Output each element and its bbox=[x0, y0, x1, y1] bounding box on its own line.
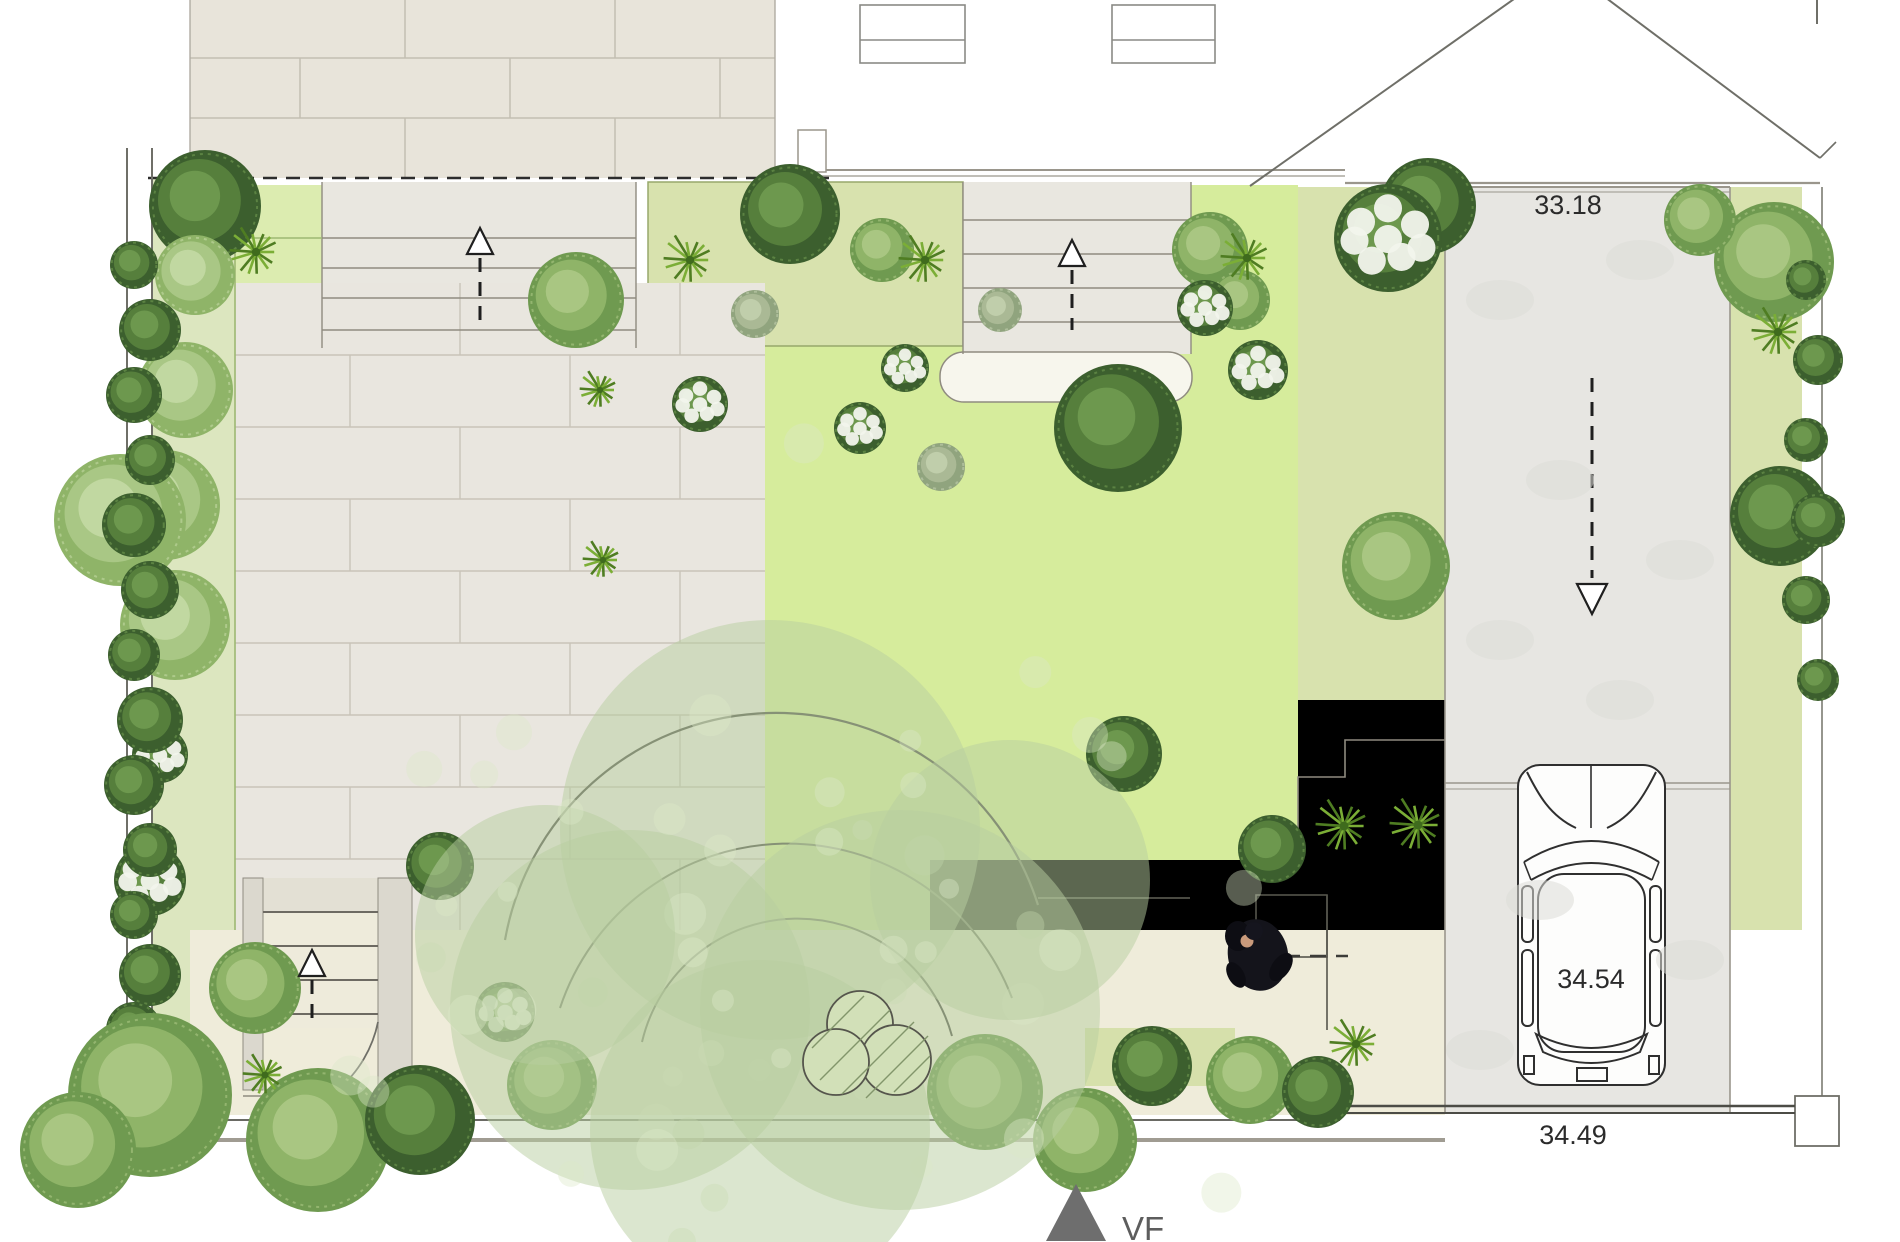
driveway-texture bbox=[1586, 680, 1654, 720]
canopy-speckle bbox=[470, 761, 498, 789]
white-bloom bbox=[170, 753, 185, 768]
tree bbox=[1793, 335, 1843, 385]
tree-foliage bbox=[119, 900, 141, 922]
grass-blade bbox=[1390, 823, 1416, 825]
grass-crown bbox=[1243, 254, 1251, 262]
grass-blade bbox=[1752, 330, 1776, 332]
driveway-texture bbox=[1506, 880, 1574, 920]
grass-crown bbox=[261, 1071, 268, 1078]
canopy-speckle bbox=[771, 1048, 791, 1068]
white-bloom bbox=[869, 426, 883, 440]
driveway-texture bbox=[1656, 940, 1724, 980]
canopy-speckle bbox=[406, 751, 442, 787]
gate-pier-right bbox=[378, 878, 412, 1090]
tree bbox=[119, 299, 181, 361]
canopy-speckle bbox=[1097, 741, 1127, 771]
tree-foliage bbox=[170, 250, 206, 286]
tree-foliage bbox=[1362, 532, 1411, 581]
flower-shrub bbox=[1334, 184, 1442, 292]
grass-blade bbox=[899, 258, 923, 260]
trunk-lobe bbox=[803, 1029, 869, 1095]
tree-foliage bbox=[119, 250, 141, 272]
tree bbox=[1786, 260, 1826, 300]
tree bbox=[121, 561, 179, 619]
grass-crown bbox=[686, 256, 694, 264]
garden-plan-canvas: 33.18 34.54 34.49 VF bbox=[0, 0, 1900, 1242]
tree bbox=[1342, 512, 1450, 620]
canopy-speckle bbox=[815, 828, 843, 856]
white-bloom bbox=[1180, 302, 1195, 317]
flower-shrub bbox=[672, 376, 728, 432]
grass-blade bbox=[925, 263, 926, 282]
tree bbox=[104, 755, 164, 815]
canopy-speckle bbox=[448, 995, 488, 1035]
flower-shrub bbox=[834, 402, 886, 454]
white-bloom bbox=[837, 423, 851, 437]
white-bloom bbox=[914, 366, 926, 378]
grass-crown bbox=[1774, 328, 1782, 336]
tree-foliage bbox=[1791, 585, 1813, 607]
canopy-speckle bbox=[1201, 1173, 1241, 1213]
tree bbox=[108, 629, 160, 681]
level-label-car: 34.54 bbox=[1557, 964, 1625, 994]
gate-post bbox=[1795, 1096, 1839, 1146]
driveway-texture bbox=[1606, 240, 1674, 280]
grass-blade bbox=[583, 559, 601, 560]
tree-foliage bbox=[1677, 197, 1709, 229]
tree-foliage bbox=[1801, 503, 1825, 527]
grass-blade bbox=[1221, 256, 1245, 258]
white-bloom bbox=[1250, 363, 1266, 379]
flower-shrub bbox=[1177, 280, 1233, 336]
tree-foliage bbox=[546, 270, 589, 313]
white-bloom bbox=[1215, 306, 1230, 321]
grass-blade bbox=[664, 258, 688, 260]
garden-plan-svg: 33.18 34.54 34.49 VF bbox=[0, 0, 1900, 1242]
flower-shrub bbox=[881, 344, 929, 392]
parked-car bbox=[1518, 765, 1665, 1085]
tree bbox=[978, 288, 1022, 332]
white-bloom bbox=[1250, 346, 1266, 362]
grass-blade bbox=[1418, 828, 1419, 849]
white-bloom bbox=[1407, 234, 1435, 262]
white-bloom bbox=[710, 402, 725, 417]
grass-crown bbox=[252, 248, 260, 256]
tree bbox=[1664, 184, 1736, 256]
canopy-speckle bbox=[915, 941, 937, 963]
tree-foliage bbox=[118, 639, 141, 662]
grass-crown bbox=[1340, 822, 1349, 831]
white-bloom bbox=[899, 362, 911, 374]
grass-blade bbox=[243, 1073, 263, 1074]
tree bbox=[123, 823, 177, 877]
grass-blade bbox=[1356, 1047, 1357, 1066]
canopy-speckle bbox=[900, 772, 926, 798]
viewpoint-label: VF bbox=[1122, 1210, 1164, 1242]
white-bloom bbox=[693, 381, 708, 396]
driveway-texture bbox=[1466, 280, 1534, 320]
tree-foliage bbox=[385, 1085, 435, 1135]
tree-foliage bbox=[759, 183, 804, 228]
grass-crown bbox=[921, 256, 929, 264]
driveway-texture bbox=[1646, 540, 1714, 580]
level-label-lower-drive: 34.49 bbox=[1539, 1120, 1607, 1150]
grass-blade bbox=[1247, 261, 1248, 280]
tree-foliage bbox=[130, 955, 158, 983]
grass-crown bbox=[597, 387, 603, 393]
white-bloom bbox=[118, 872, 137, 891]
person-hair bbox=[1245, 922, 1263, 940]
driveway-texture bbox=[1526, 460, 1594, 500]
tree-foliage bbox=[862, 230, 891, 259]
tree bbox=[1206, 1036, 1294, 1124]
white-bloom bbox=[1374, 225, 1402, 253]
canopy-speckle bbox=[689, 694, 731, 736]
grass-crown bbox=[1414, 821, 1423, 830]
tree bbox=[1797, 659, 1839, 701]
tree bbox=[850, 218, 914, 282]
tree bbox=[1791, 493, 1845, 547]
driveway-texture bbox=[1466, 620, 1534, 660]
tree bbox=[740, 164, 840, 264]
canopy-speckle bbox=[899, 730, 921, 752]
canopy-speckle bbox=[880, 936, 908, 964]
tree-foliage bbox=[129, 699, 159, 729]
tree bbox=[1784, 418, 1828, 462]
tree bbox=[110, 241, 158, 289]
canopy-speckle bbox=[704, 834, 736, 866]
tree-foliage bbox=[986, 296, 1006, 316]
white-bloom bbox=[693, 397, 708, 412]
canopy-speckle bbox=[678, 937, 708, 967]
tree-foliage bbox=[1802, 344, 1825, 367]
white-bloom bbox=[899, 349, 911, 361]
tree bbox=[102, 493, 166, 557]
white-bloom bbox=[163, 877, 182, 896]
tree-foliage bbox=[1127, 1041, 1163, 1077]
canopy-speckle bbox=[558, 799, 584, 825]
tree bbox=[1054, 364, 1182, 492]
canopy-speckle bbox=[712, 990, 734, 1012]
canopy-speckle bbox=[636, 1129, 678, 1171]
canopy-speckle bbox=[939, 879, 959, 899]
level-label-upper-drive: 33.18 bbox=[1534, 190, 1602, 220]
grass-blade bbox=[1778, 335, 1779, 354]
tree-foliage bbox=[114, 505, 143, 534]
tree-foliage bbox=[1749, 485, 1794, 530]
grass-crown bbox=[600, 557, 606, 563]
tree-foliage bbox=[132, 572, 158, 598]
entrance-landing bbox=[263, 878, 378, 912]
white-bloom bbox=[675, 398, 690, 413]
canopy-speckle bbox=[654, 803, 686, 835]
tree-foliage bbox=[1186, 226, 1220, 260]
terrace-paving bbox=[190, 0, 775, 178]
canopy-speckle bbox=[494, 988, 536, 1030]
canopy-speckle bbox=[330, 1056, 370, 1096]
tree-foliage bbox=[1295, 1069, 1327, 1101]
tree bbox=[119, 944, 181, 1006]
tree-foliage bbox=[130, 310, 158, 338]
tree-foliage bbox=[116, 377, 141, 402]
tree-foliage bbox=[134, 444, 157, 467]
tree bbox=[1782, 576, 1830, 624]
canopy-speckle bbox=[496, 714, 532, 750]
tree-foliage bbox=[1805, 667, 1824, 686]
canopy-speckle bbox=[1226, 870, 1262, 906]
tree-foliage bbox=[115, 766, 142, 793]
tree-foliage bbox=[1251, 828, 1282, 859]
grass-blade bbox=[256, 255, 257, 274]
white-bloom bbox=[884, 363, 896, 375]
tree bbox=[125, 435, 175, 485]
trunk-lobe bbox=[861, 1025, 931, 1095]
canopy-speckle bbox=[435, 894, 457, 916]
tree-foliage bbox=[926, 452, 948, 474]
tree bbox=[1112, 1026, 1192, 1106]
viewpoint-triangle-icon bbox=[1046, 1184, 1106, 1241]
tree bbox=[917, 443, 965, 491]
canopy-speckle bbox=[1039, 929, 1081, 971]
canopy-speckle bbox=[784, 423, 824, 463]
white-bloom bbox=[853, 407, 867, 421]
tree-foliage bbox=[1078, 388, 1136, 446]
white-bloom bbox=[1232, 364, 1248, 380]
bay-window bbox=[860, 5, 965, 63]
tree bbox=[155, 235, 235, 315]
tree bbox=[209, 942, 301, 1034]
tree-foliage bbox=[133, 833, 157, 857]
tree bbox=[528, 252, 624, 348]
canopy-speckle bbox=[1004, 1118, 1044, 1158]
tree-foliage bbox=[1792, 426, 1812, 446]
white-bloom bbox=[1269, 368, 1285, 384]
tree-foliage bbox=[1793, 267, 1811, 285]
grass-blade bbox=[265, 1077, 266, 1093]
grass-blade bbox=[580, 389, 598, 390]
tree bbox=[1282, 1056, 1354, 1128]
tree-foliage bbox=[1222, 1052, 1262, 1092]
canopy-speckle bbox=[815, 777, 845, 807]
white-bloom bbox=[1340, 227, 1368, 255]
roof-house-footprint bbox=[1345, 0, 1820, 182]
grass-blade bbox=[230, 250, 254, 252]
grass-blade bbox=[1344, 829, 1345, 850]
tree-foliage bbox=[740, 299, 762, 321]
white-bloom bbox=[1198, 301, 1213, 316]
tree bbox=[20, 1092, 136, 1208]
grass-crown bbox=[1352, 1040, 1360, 1048]
tree-foliage bbox=[41, 1113, 93, 1165]
grass-blade bbox=[1330, 1042, 1354, 1044]
tree bbox=[117, 687, 183, 753]
driveway-texture bbox=[1446, 1030, 1514, 1070]
canopy-speckle bbox=[1019, 656, 1051, 688]
roof-step bbox=[1820, 142, 1836, 158]
white-bloom bbox=[1198, 285, 1213, 300]
white-bloom bbox=[1374, 194, 1402, 222]
tree-foliage bbox=[1736, 224, 1790, 278]
tree bbox=[731, 290, 779, 338]
tree-foliage bbox=[226, 959, 267, 1000]
white-bloom bbox=[853, 422, 867, 436]
tree-foliage bbox=[170, 171, 220, 221]
flower-shrub bbox=[1228, 340, 1288, 400]
tree-foliage bbox=[273, 1095, 338, 1160]
canopy-speckle bbox=[498, 882, 518, 902]
tree bbox=[106, 367, 162, 423]
grass-blade bbox=[1316, 824, 1342, 826]
tree bbox=[110, 891, 158, 939]
bay-window bbox=[1112, 5, 1215, 63]
grass-blade bbox=[690, 263, 691, 282]
canopy-speckle bbox=[558, 1161, 584, 1187]
